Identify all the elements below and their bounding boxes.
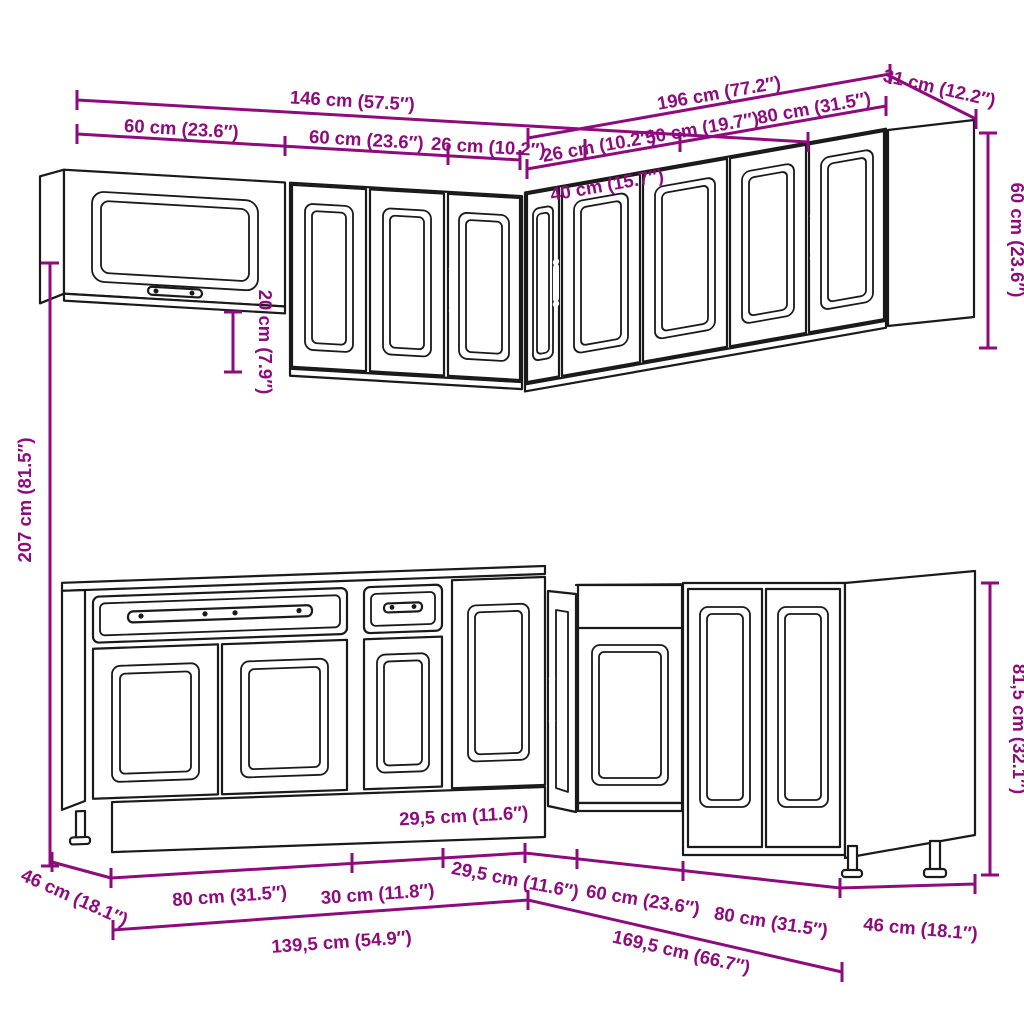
base-cabinet-80-right — [683, 583, 845, 855]
door-handle — [549, 676, 555, 724]
dim-label-overall-height: 207 cm (81.5″) — [14, 437, 35, 562]
dim-line-base-depth-left — [52, 852, 111, 878]
dim-label-base-depth-left: 46 cm (18.1″) — [18, 864, 131, 930]
dim-label-base-seg-right-1: 60 cm (23.6″) — [585, 880, 702, 919]
wall-cabinets-right-run — [525, 129, 886, 392]
door-handle — [769, 676, 775, 724]
dim-label-wall-height: 60 cm (23.6″) — [1007, 183, 1024, 298]
dim-line-overall-height — [41, 263, 59, 866]
wall-cabinets-tall-left — [290, 183, 522, 389]
dim-label-base-seg-left-2: 30 cm (11.8″) — [320, 879, 435, 908]
dim-label-base-total-left: 139,5 cm (54.9″) — [271, 926, 413, 957]
technical-drawing-page: 146 cm (57.5″) 196 cm (77.2″) 31 cm (12.… — [0, 0, 1024, 1024]
door-handle — [810, 212, 816, 262]
dim-label-base-height: 81,5 cm (32.1″) — [1009, 664, 1024, 794]
dim-line-base-height — [981, 583, 999, 875]
handle-horizontal — [148, 287, 202, 298]
door-handle — [356, 258, 362, 307]
dim-label-base-seg-right-2: 80 cm (31.5″) — [713, 902, 830, 941]
dim-label-wall-return-right: 31 cm (12.2″) — [881, 65, 998, 111]
base-leg — [924, 841, 946, 877]
cabinet-artwork — [40, 120, 975, 877]
dim-line-height-step — [224, 312, 242, 372]
door-handle — [367, 685, 373, 734]
dim-label-height-step: 20 cm (7.9″) — [255, 290, 276, 395]
door-handle — [754, 676, 760, 724]
dim-label-base-seg-left-1: 80 cm (31.5″) — [172, 881, 288, 910]
wall-cabinet-horizontal-glass — [64, 170, 285, 314]
dim-label-wall-total-left: 146 cm (57.5″) — [289, 86, 415, 114]
dim-label-base-total-right: 169,5 cm (66.7″) — [611, 926, 753, 978]
dim-label-base-depth-right: 46 cm (18.1″) — [862, 913, 978, 944]
door-handle — [449, 266, 455, 315]
base-cabinet-sink — [578, 585, 682, 811]
wall-side-panel-right — [888, 120, 974, 326]
door-handle — [209, 690, 215, 739]
base-cabinet-80-drawer-doors — [93, 588, 347, 799]
base-cabinet-corner-left-door — [452, 577, 545, 788]
door-handle — [631, 244, 637, 294]
kitchen-cabinet-drawing: 146 cm (57.5″) 196 cm (77.2″) 31 cm (12.… — [0, 0, 1024, 1024]
door-handle — [797, 214, 803, 264]
door-handle — [718, 229, 724, 279]
wall-side-panel-left — [40, 168, 64, 304]
door-handle — [553, 258, 559, 308]
base-side-panel-left — [62, 590, 85, 810]
base-cabinets-right-run — [548, 571, 975, 877]
base-leg — [70, 811, 90, 845]
dim-label-base-corner-right: 29,5 cm (11.6″) — [450, 857, 581, 902]
base-cabinet-30-drawer-door — [364, 585, 442, 790]
door-handle — [535, 669, 541, 718]
door-handle — [225, 690, 231, 739]
dim-line-wall-height — [979, 133, 997, 348]
wall-cabinets-left-run — [40, 168, 522, 389]
door-handle — [372, 259, 378, 308]
base-side-panel-right — [845, 571, 975, 858]
